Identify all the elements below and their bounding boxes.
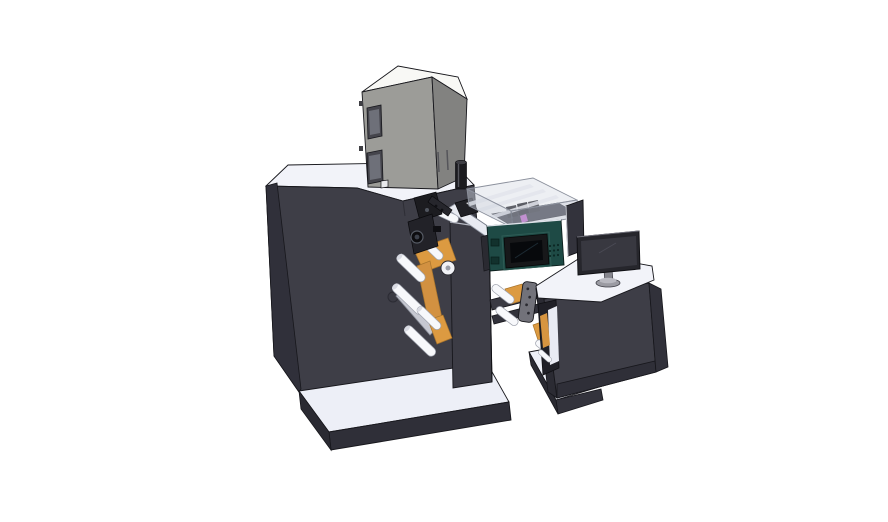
cad-viewport: [0, 0, 888, 522]
equipment-box-hinge-upper: [359, 101, 363, 106]
signal-column-cap: [456, 160, 467, 164]
equipment-box-window-lower-inner: [369, 154, 381, 180]
controller-button-lower: [491, 257, 499, 264]
signal-column-body: [456, 162, 467, 189]
operator-desk: [536, 254, 668, 398]
mech-bolt-1: [435, 205, 438, 208]
mech-knob: [425, 208, 429, 212]
equipment-box-window-upper-inner: [369, 109, 380, 135]
controller-button-upper: [491, 239, 499, 246]
inkjet-enclosure: [466, 178, 579, 228]
equipment-box: [359, 66, 467, 189]
equipment-box-hinge-lower: [359, 146, 363, 151]
cad-render-stage: [0, 0, 888, 522]
equipment-box-latch: [381, 180, 388, 188]
mech-gear-hub: [415, 235, 420, 240]
inkjet-controller: [481, 220, 564, 271]
controller-vent-dots: [549, 244, 559, 257]
roller-end-cap-hub: [446, 266, 451, 271]
equipment-box-vent-slot-2: [447, 150, 448, 170]
equipment-box-vent-slot-1: [438, 152, 439, 172]
mech-clamp: [433, 226, 441, 232]
monitor-stand-base-top: [600, 278, 617, 284]
mech-bolt-2: [441, 209, 444, 212]
monitor-screen: [581, 236, 637, 271]
